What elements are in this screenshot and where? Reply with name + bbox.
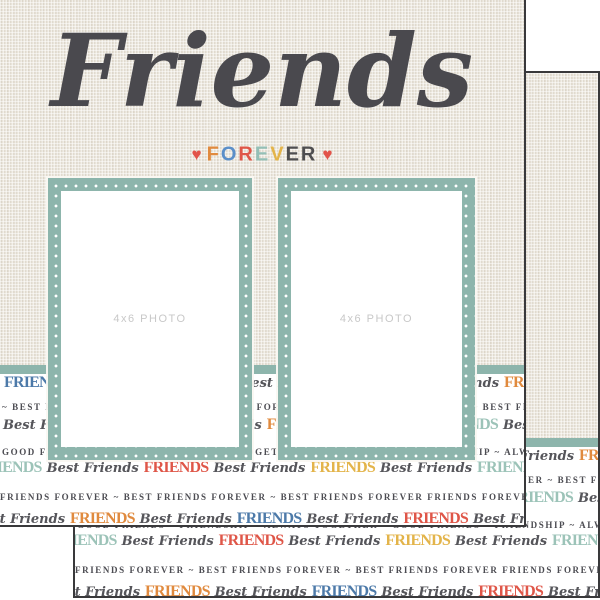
text-row: FRIENDSBest FriendsFRIENDSBest FriendsFR… [73, 533, 600, 549]
script-word: Best Friends [500, 418, 526, 433]
script-word: Best Friends [303, 512, 401, 527]
friends-word: FRIENDS [550, 532, 600, 549]
friends-word: FRIENDS [308, 459, 377, 476]
forever-letter: V [270, 143, 285, 165]
friends-word: FRIENDS [310, 583, 379, 598]
script-word: Best Friends [44, 461, 142, 476]
heart-icon: ♥ [187, 145, 207, 164]
forever-letter: O [221, 143, 239, 165]
script-word: Best Friends [452, 534, 550, 549]
forever-letter: E [255, 143, 270, 165]
text-row: Best FriendsFRIENDSBest FriendsFRIENDSBe… [73, 584, 600, 598]
friends-word: FRIENDS [502, 374, 526, 391]
forever-letters: FOREVER [207, 146, 318, 163]
forever-letter: E [286, 143, 301, 165]
friends-word: FRIENDS [0, 459, 44, 476]
friends-word: FRIENDS [475, 459, 526, 476]
friends-word: FRIENDS [73, 532, 119, 549]
script-word: Best Friends [285, 534, 383, 549]
script-word: Best Friends [73, 585, 143, 598]
text-row: FRIENDS FOREVER ~ BEST FRIENDS FOREVER ~… [75, 566, 600, 575]
friends-word: FRIENDS [235, 510, 304, 527]
forever-letter: R [238, 143, 254, 165]
front-sheet: FRIENDSBest FriendsFRIENDSBest FriendsFR… [0, 0, 526, 527]
text-row: Best FriendsFRIENDSBest FriendsFRIENDSBe… [0, 511, 526, 527]
script-word: Best Friends [210, 461, 308, 476]
photo-frame-left-opening: 4x6 PHOTO [61, 191, 239, 447]
forever-letter: F [207, 143, 221, 165]
friends-word: FRIENDS [143, 583, 212, 598]
script-word: Best Friends [378, 585, 476, 598]
product-image: FRIENDSBest FriendsFRIENDSBest FriendsFR… [0, 0, 600, 600]
script-word: Best Friends [545, 585, 600, 598]
script-word: Best Friends [137, 512, 235, 527]
friends-word: FRIENDS [476, 583, 545, 598]
script-word: Best Friends [0, 512, 68, 527]
script-word: Best Friends [470, 512, 526, 527]
script-word: Best Friends [377, 461, 475, 476]
friends-word: FRIENDS [383, 532, 452, 549]
friends-word: FRIENDS [68, 510, 137, 527]
subtitle-forever: ♥FOREVER♥ [0, 143, 524, 166]
friends-word: FRIENDS [401, 510, 470, 527]
heart-icon: ♥ [317, 145, 337, 164]
photo-frame-right: 4x6 PHOTO [278, 178, 475, 460]
friends-word: FRIENDS [577, 447, 600, 464]
script-word: Best Friends [575, 491, 600, 506]
title-friends-script: Friends [51, 6, 473, 136]
forever-letter: R [301, 143, 317, 165]
script-word: Best Friends [212, 585, 310, 598]
text-row: FRIENDS FOREVER ~ BEST FRIENDS FOREVER ~… [0, 493, 526, 502]
friends-word: FRIENDS [142, 459, 211, 476]
script-word: Best Friends [119, 534, 217, 549]
photo-frame-left: 4x6 PHOTO [48, 178, 252, 460]
friends-word: FRIENDS [217, 532, 286, 549]
photo-size-label: 4x6 PHOTO [340, 313, 413, 325]
photo-frame-right-opening: 4x6 PHOTO [291, 191, 462, 447]
text-row: FRIENDSBest FriendsFRIENDSBest FriendsFR… [0, 460, 526, 476]
photo-size-label: 4x6 PHOTO [113, 313, 186, 325]
